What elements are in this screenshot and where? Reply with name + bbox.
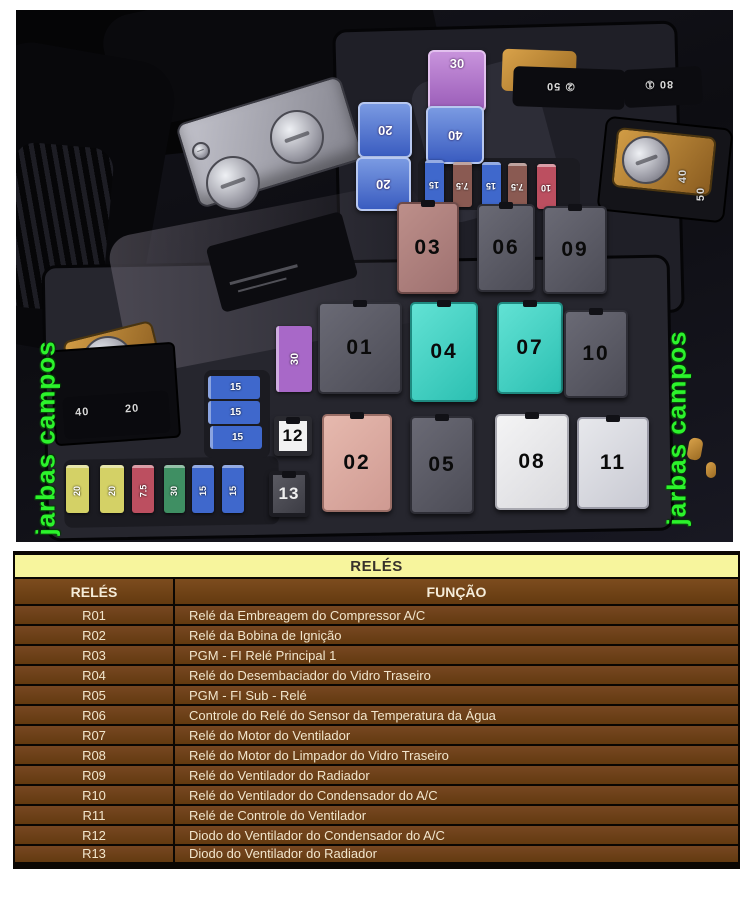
busbar-bolt [270, 110, 324, 164]
fuse-cover-mark: ② 50 [546, 80, 575, 93]
diode-12: 12 [274, 416, 312, 456]
table-row: R12Diodo do Ventilador do Condensador do… [14, 825, 739, 845]
relay-11: 11 [577, 417, 649, 509]
busbar-bolt [206, 156, 260, 210]
watermark-left: jarbas campos [31, 356, 62, 536]
diode-13: 13 [269, 471, 309, 517]
mini-fuse-15-stack: 15 [208, 376, 260, 399]
jcase-fuse-40: 40 [426, 106, 484, 164]
column-header-reles: RELÉS [14, 578, 174, 605]
table-row: R01Relé da Embreagem do Compressor A/C [14, 605, 739, 625]
relay-10: 10 [564, 310, 628, 398]
mini-fuse-30: 30 [164, 465, 185, 513]
fuse-cover-mark: 80 ① [644, 78, 673, 91]
table-row: R04Relé do Desembaciador do Vidro Trasei… [14, 665, 739, 685]
table-row: R08Relé do Motor do Limpador do Vidro Tr… [14, 745, 739, 765]
relay-03: 03 [397, 202, 459, 294]
column-header-funcao: FUNÇÃO [174, 578, 739, 605]
small-screw [192, 142, 210, 160]
mini-fuse-15-stack: 15 [208, 401, 260, 424]
terminal-bolt-right [622, 136, 670, 184]
mini-fuse-15-stack: 15 [210, 426, 262, 449]
table-row: R11Relé de Controle do Ventilador [14, 805, 739, 825]
mini-fuse-20: 20 [66, 465, 89, 513]
relay-04: 04 [410, 302, 478, 402]
mini-fuse-15: 15 [222, 465, 244, 513]
mini-fuse-7-5: 7.5 [453, 162, 472, 207]
table-title: RELÉS [14, 553, 739, 578]
jcase-fuse-30: 30 [428, 50, 486, 112]
watermark-right: jarbas campos [662, 346, 693, 526]
terminal-mark: 40 [677, 169, 689, 183]
mini-fuse-15: 15 [192, 465, 214, 513]
relay-08: 08 [495, 414, 569, 510]
mini-fuse-20: 20 [100, 465, 124, 513]
table-row: R06Controle do Relé do Sensor da Tempera… [14, 705, 739, 725]
main-fuse-mark: 20 [125, 402, 140, 415]
mini-fuse-15: 15 [482, 162, 501, 207]
table-row: R05PGM - FI Sub - Relé [14, 685, 739, 705]
relay-07: 07 [497, 302, 563, 394]
mini-fuse-7-5: 7.5 [132, 465, 154, 513]
relay-02: 02 [322, 414, 392, 512]
relay-01: 01 [318, 302, 402, 394]
relay-table: RELÉS RELÉS FUNÇÃO R01Relé da Embreagem … [13, 551, 740, 869]
relay-05: 05 [410, 416, 474, 514]
relay-09: 09 [543, 206, 607, 294]
table-row: R02Relé da Bobina de Ignição [14, 625, 739, 645]
mini-fuse-10: 10 [537, 164, 556, 209]
mini-fuse-30-purple: 30 [276, 326, 312, 392]
main-fuse-mark: 40 [75, 406, 90, 419]
table-row: R10Relé do Ventilador do Condensador do … [14, 785, 739, 805]
table-row: R09Relé do Ventilador do Radiador [14, 765, 739, 785]
fusebox-photo: 40 50 ② 50 80 ① 40 20 30 20 40 20 15 7.5… [16, 10, 733, 542]
relay-06: 06 [477, 204, 535, 292]
table-row: R03PGM - FI Relé Principal 1 [14, 645, 739, 665]
table-row: R13Diodo do Ventilador do Radiador [14, 845, 739, 865]
amber-detail [706, 462, 716, 478]
table-row: R07Relé do Motor do Ventilador [14, 725, 739, 745]
terminal-mark: 50 [695, 187, 707, 201]
jcase-fuse-20-upper: 20 [358, 102, 412, 158]
main-fuse-cover: 40 20 [49, 342, 181, 447]
